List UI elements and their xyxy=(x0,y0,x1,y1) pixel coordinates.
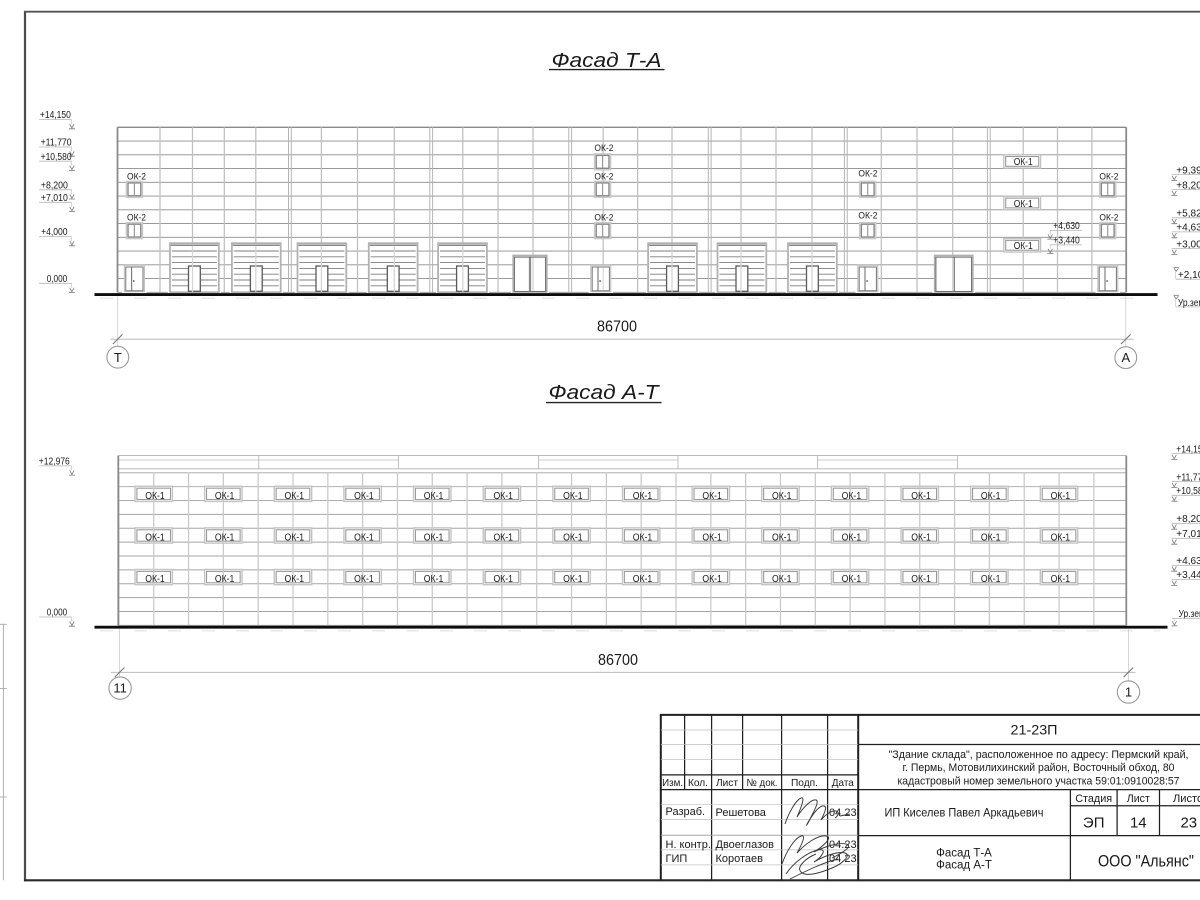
svg-text:ОК-1: ОК-1 xyxy=(1051,573,1071,585)
svg-text:ОК-1: ОК-1 xyxy=(702,573,722,585)
svg-text:Н. контр.: Н. контр. xyxy=(666,839,711,851)
svg-text:ОК-1: ОК-1 xyxy=(285,490,305,502)
svg-text:ООО "Альянс": ООО "Альянс" xyxy=(1098,852,1194,870)
svg-text:ОК-1: ОК-1 xyxy=(424,490,444,502)
svg-text:ОК-1: ОК-1 xyxy=(702,531,722,543)
svg-text:ОК-2: ОК-2 xyxy=(127,213,146,224)
svg-text:ОК-1: ОК-1 xyxy=(1051,531,1071,543)
svg-text:ОК-1: ОК-1 xyxy=(981,490,1001,502)
svg-text:Двоеглазов: Двоеглазов xyxy=(716,839,775,851)
svg-text:ИП Киселев Павел Аркадьевич: ИП Киселев Павел Аркадьевич xyxy=(885,807,1044,819)
svg-text:14: 14 xyxy=(1130,814,1147,831)
svg-text:Подп.: Подп. xyxy=(791,777,818,789)
svg-text:ОК-1: ОК-1 xyxy=(493,490,513,502)
svg-text:ОК-1: ОК-1 xyxy=(702,490,722,502)
svg-text:ОК-1: ОК-1 xyxy=(424,573,444,585)
svg-text:ОК-1: ОК-1 xyxy=(772,490,792,502)
svg-text:ОК-2: ОК-2 xyxy=(1099,213,1118,224)
svg-text:ОК-2: ОК-2 xyxy=(594,213,613,224)
svg-text:Ур.земли: Ур.земли xyxy=(1178,298,1200,309)
svg-text:1: 1 xyxy=(1125,685,1132,700)
svg-text:Фасад А-Т: Фасад А-Т xyxy=(936,859,992,871)
svg-text:Кол.: Кол. xyxy=(688,777,708,789)
svg-text:Изм.: Изм. xyxy=(662,777,683,789)
svg-text:86700: 86700 xyxy=(598,652,638,669)
svg-text:21-23П: 21-23П xyxy=(1011,722,1058,738)
svg-text:Лист: Лист xyxy=(1127,793,1150,805)
svg-text:ОК-1: ОК-1 xyxy=(911,531,931,543)
svg-text:Коротаев: Коротаев xyxy=(716,853,764,865)
svg-text:кадастровый номер земельного у: кадастровый номер земельного участка 59:… xyxy=(898,776,1180,788)
svg-text:ОК-2: ОК-2 xyxy=(1099,171,1118,182)
svg-text:23: 23 xyxy=(1180,814,1197,831)
svg-text:ОК-1: ОК-1 xyxy=(1014,157,1033,168)
svg-text:ОК-1: ОК-1 xyxy=(145,573,165,585)
svg-text:ОК-2: ОК-2 xyxy=(127,171,146,182)
svg-text:ОК-1: ОК-1 xyxy=(145,531,165,543)
svg-text:ОК-1: ОК-1 xyxy=(215,531,235,543)
svg-text:ОК-1: ОК-1 xyxy=(772,573,792,585)
svg-text:Фасад А-Т: Фасад А-Т xyxy=(549,382,661,404)
svg-text:ГИП: ГИП xyxy=(666,853,688,865)
svg-text:ОК-1: ОК-1 xyxy=(563,531,583,543)
svg-text:ОК-1: ОК-1 xyxy=(145,490,165,502)
svg-text:Решетова: Решетова xyxy=(716,807,767,819)
svg-text:ОК-1: ОК-1 xyxy=(354,490,374,502)
svg-text:Т: Т xyxy=(114,350,122,365)
svg-text:ОК-1: ОК-1 xyxy=(354,531,374,543)
svg-text:ОК-1: ОК-1 xyxy=(215,573,235,585)
svg-text:ОК-1: ОК-1 xyxy=(981,573,1001,585)
svg-text:ОК-1: ОК-1 xyxy=(354,573,374,585)
svg-text:Фасад Т-А: Фасад Т-А xyxy=(552,50,662,72)
svg-text:Разраб.: Разраб. xyxy=(666,806,706,818)
svg-text:04.23: 04.23 xyxy=(829,807,857,819)
svg-text:ОК-1: ОК-1 xyxy=(772,531,792,543)
svg-text:ЭП: ЭП xyxy=(1083,814,1105,831)
svg-text:Дата: Дата xyxy=(832,777,854,789)
svg-text:86700: 86700 xyxy=(597,318,637,335)
svg-text:"Здание склада", расположенное: "Здание склада", расположенное по адресу… xyxy=(889,749,1189,761)
svg-text:ОК-2: ОК-2 xyxy=(858,169,877,180)
svg-text:ОК-1: ОК-1 xyxy=(842,573,862,585)
svg-text:ОК-1: ОК-1 xyxy=(424,531,444,543)
svg-text:ОК-2: ОК-2 xyxy=(858,211,877,222)
svg-text:Листов: Листов xyxy=(1173,793,1200,805)
svg-text:ОК-1: ОК-1 xyxy=(911,573,931,585)
svg-text:ОК-1: ОК-1 xyxy=(285,573,305,585)
svg-text:ОК-1: ОК-1 xyxy=(981,531,1001,543)
svg-text:А: А xyxy=(1121,350,1130,365)
svg-text:ОК-1: ОК-1 xyxy=(633,573,653,585)
svg-text:ОК-1: ОК-1 xyxy=(842,531,862,543)
svg-text:ОК-1: ОК-1 xyxy=(1014,199,1033,210)
svg-text:ОК-1: ОК-1 xyxy=(633,531,653,543)
svg-text:Фасад Т-А: Фасад Т-А xyxy=(936,848,992,860)
svg-text:ОК-1: ОК-1 xyxy=(215,490,235,502)
svg-text:+2,100: +2,100 xyxy=(1178,270,1200,281)
svg-text:ОК-1: ОК-1 xyxy=(563,573,583,585)
svg-text:ОК-1: ОК-1 xyxy=(1051,490,1071,502)
svg-text:ОК-2: ОК-2 xyxy=(594,171,613,182)
svg-text:ОК-1: ОК-1 xyxy=(1014,241,1033,252)
svg-text:ОК-2: ОК-2 xyxy=(594,143,613,154)
svg-text:ОК-1: ОК-1 xyxy=(493,573,513,585)
svg-text:04.23: 04.23 xyxy=(829,853,857,865)
svg-text:ОК-1: ОК-1 xyxy=(563,490,583,502)
svg-text:ОК-1: ОК-1 xyxy=(493,531,513,543)
svg-text:Лист: Лист xyxy=(716,777,738,789)
svg-text:ОК-1: ОК-1 xyxy=(911,490,931,502)
svg-text:№ док.: № док. xyxy=(747,777,778,789)
svg-text:г. Пермь, Мотовилихинский райо: г. Пермь, Мотовилихинский район, Восточн… xyxy=(903,762,1175,774)
svg-text:ОК-1: ОК-1 xyxy=(633,490,653,502)
svg-text:11: 11 xyxy=(113,681,127,696)
svg-text:ОК-1: ОК-1 xyxy=(842,490,862,502)
svg-text:ОК-1: ОК-1 xyxy=(285,531,305,543)
svg-text:Стадия: Стадия xyxy=(1075,793,1112,805)
